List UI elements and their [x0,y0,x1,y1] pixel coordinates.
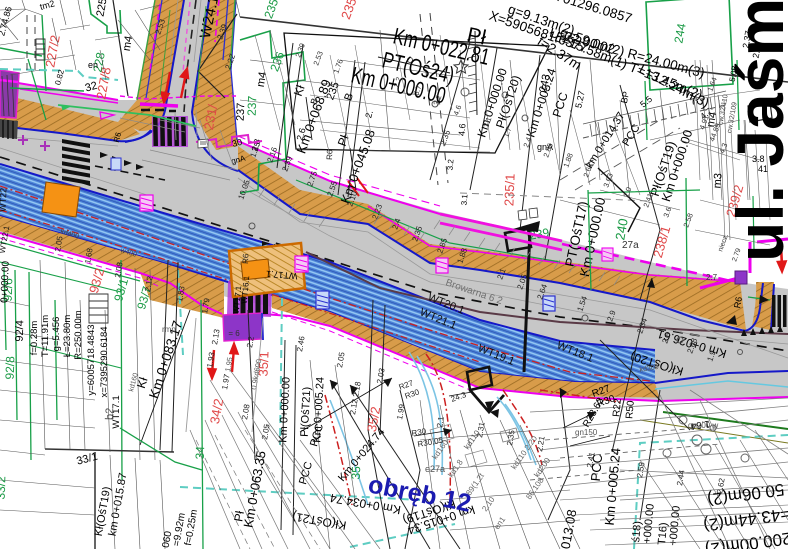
svg-text:en: en [88,60,98,70]
svg-text:R6: R6 [732,296,744,309]
svg-text:y=6005718.4843: y=6005718.4843 [86,324,97,395]
svg-text:3.1: 3.1 [460,193,470,205]
svg-text:Ł=23.80m: Ł=23.80m [62,315,73,358]
svg-text:e27a: e27a [425,464,445,474]
svg-text:35: 35 [349,466,363,480]
svg-text:R50: R50 [624,400,637,420]
svg-text:f=0.28m: f=0.28m [29,321,40,356]
svg-text:R22: R22 [611,398,624,418]
svg-text:WT22: WT22 [0,188,8,212]
svg-text:T=11.91m: T=11.91m [40,315,51,357]
svg-text:b2: b2 [104,408,116,421]
svg-text:g=5.456: g=5.456 [51,317,62,352]
svg-text:ul. Jaśmiń: ul. Jaśmiń [723,0,788,262]
svg-text:92/8: 92/8 [3,356,18,380]
svg-text:34: 34 [193,446,207,460]
svg-text:3.2: 3.2 [446,158,456,170]
svg-text:R=250.00m: R=250.00m [73,310,84,359]
svg-text:92/4: 92/4 [14,320,27,342]
svg-text:= 6: = 6 [228,329,240,338]
svg-text:R6: R6 [241,253,250,264]
svg-text:237: 237 [235,103,248,122]
svg-text:4.6: 4.6 [456,123,467,136]
svg-text:2.7: 2.7 [706,273,718,282]
svg-text:x=7395290.6184: x=7395290.6184 [99,326,110,397]
svg-text:33/2: 33/2 [0,476,8,500]
svg-text:235/1: 235/1 [501,173,517,206]
svg-text:27a: 27a [622,240,639,251]
svg-text:0+000.00: 0+000.00 [0,260,12,303]
svg-text:rmp: rmp [162,325,176,334]
svg-text:gn150: gn150 [575,428,598,437]
